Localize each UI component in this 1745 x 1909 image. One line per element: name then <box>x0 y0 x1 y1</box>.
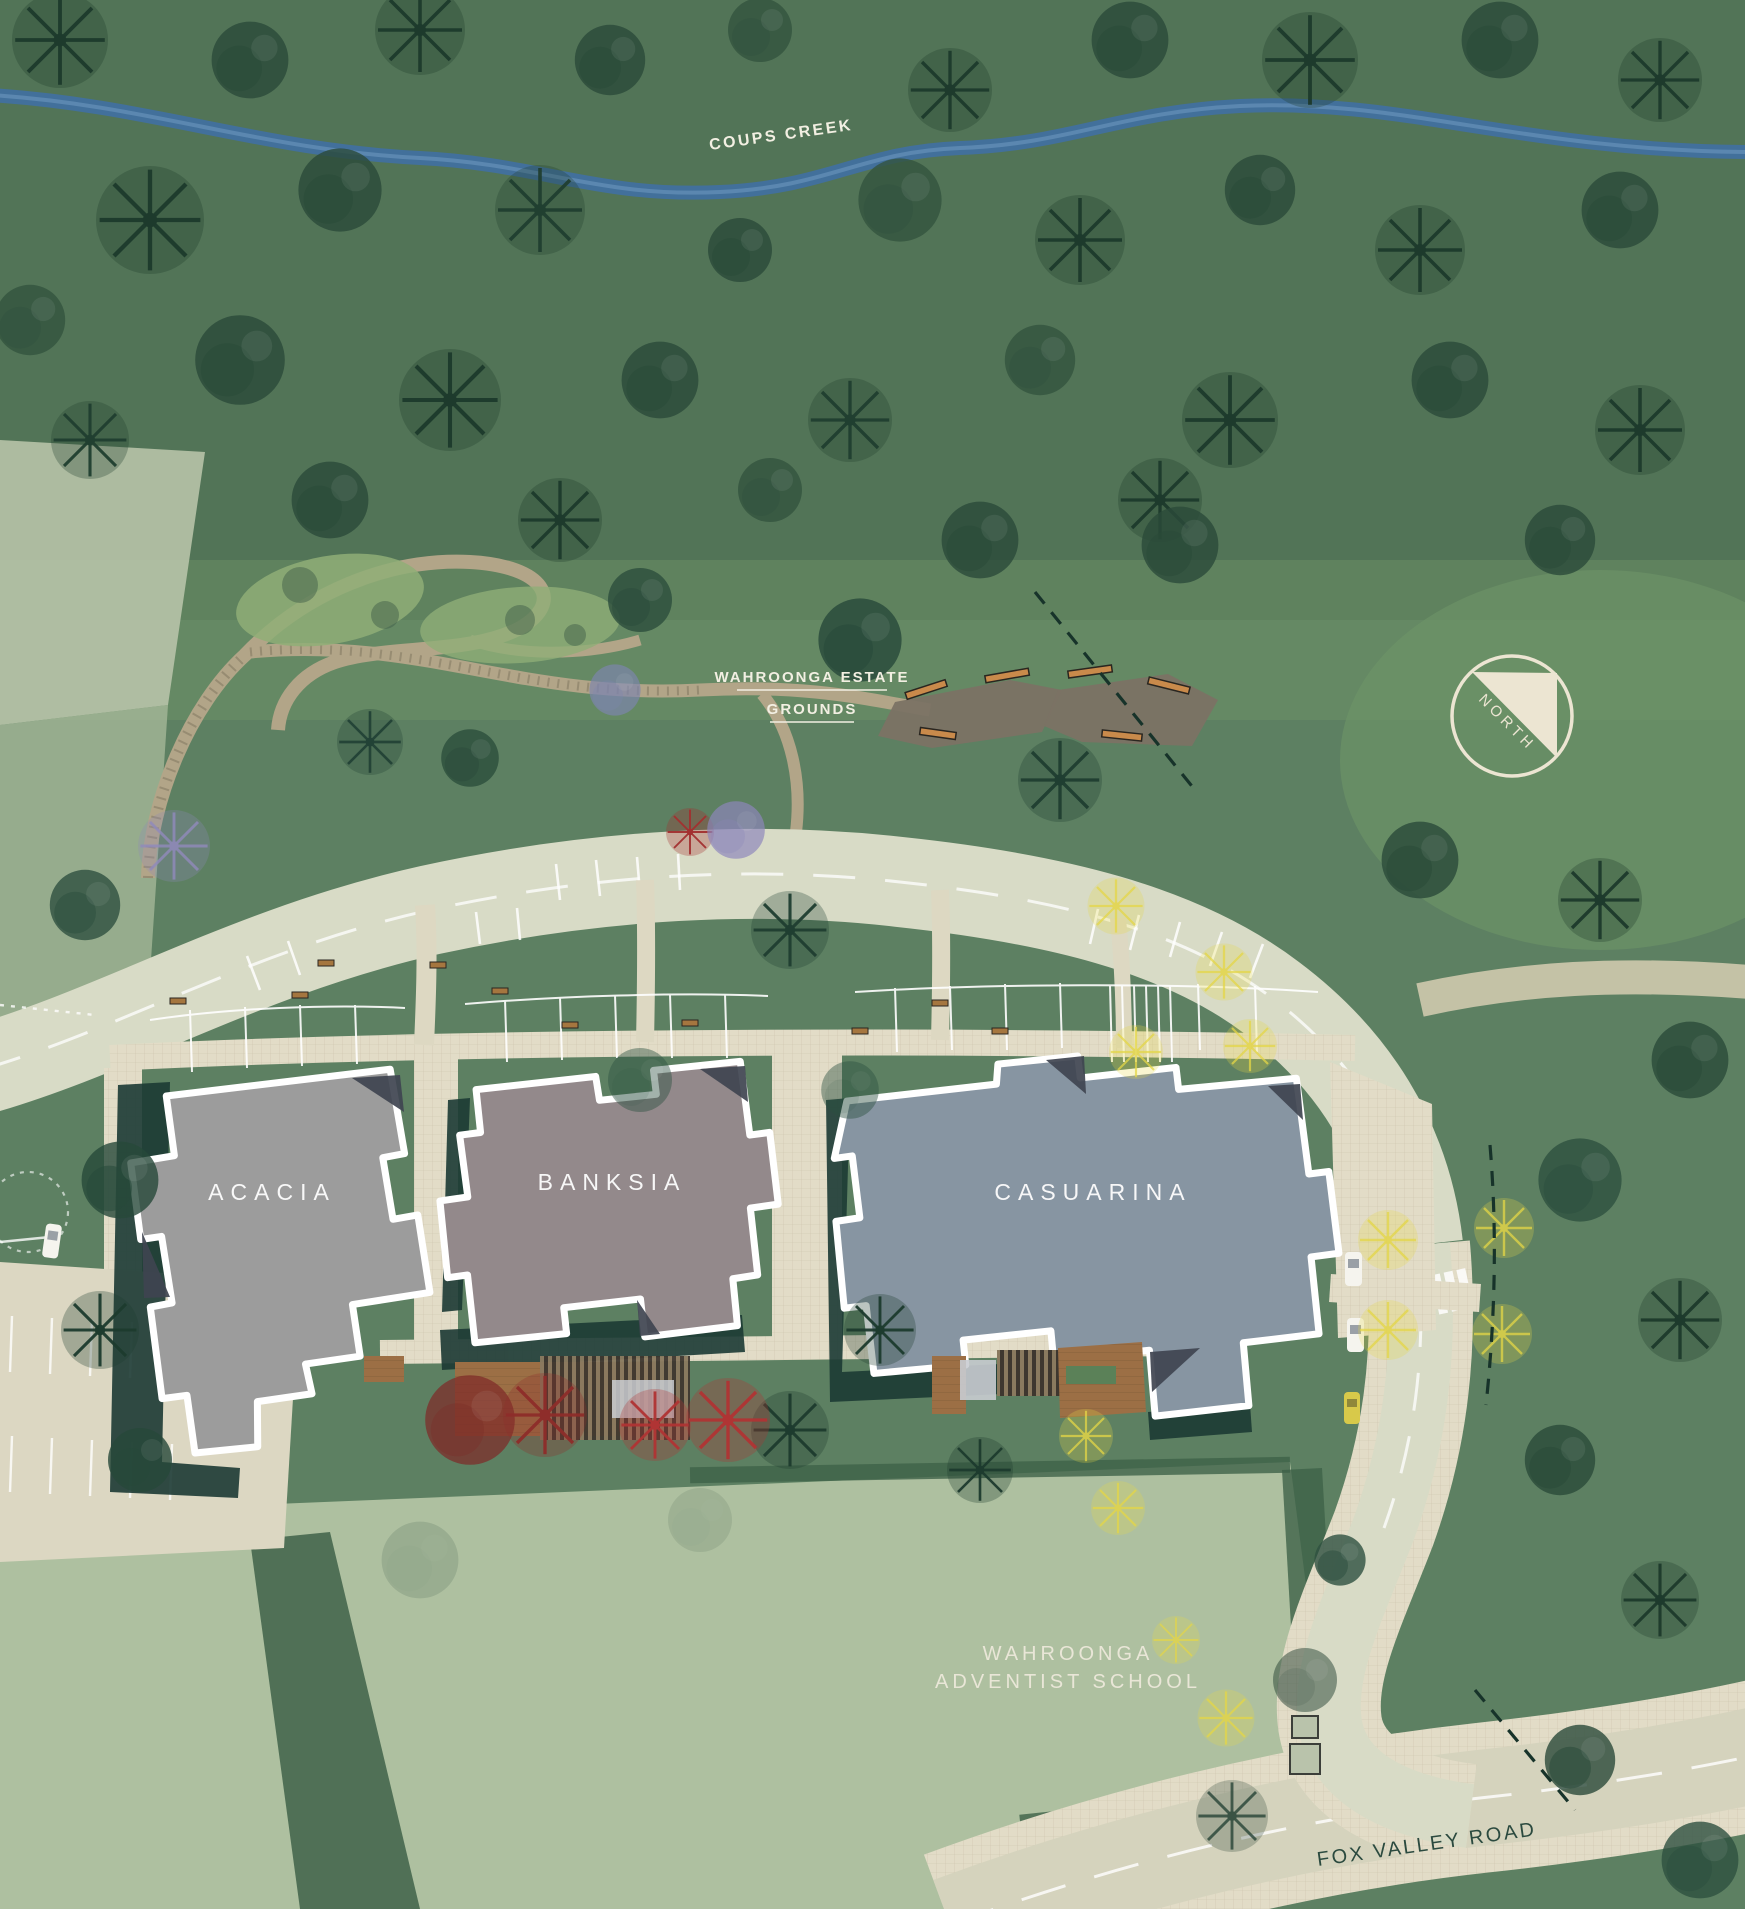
yellow-tree-icon <box>1358 1210 1418 1270</box>
red-tree-icon <box>503 1373 587 1457</box>
tree-icon <box>1018 738 1102 822</box>
tree-icon <box>1525 1425 1595 1495</box>
tree-icon <box>942 502 1019 579</box>
tree-icon <box>1582 172 1659 249</box>
yellow-tree-icon <box>1059 1409 1113 1463</box>
estate-label-line2: GROUNDS <box>767 701 858 718</box>
tree-icon <box>1314 1534 1365 1585</box>
yellow-tree-icon <box>1223 1019 1277 1073</box>
yellow-tree-icon <box>1474 1198 1534 1258</box>
tree-icon <box>1005 325 1075 395</box>
yellow-tree-icon <box>1358 1300 1418 1360</box>
building-banksia <box>435 1060 782 1344</box>
tree-icon <box>1196 1780 1268 1852</box>
purple-tree-icon <box>138 810 210 882</box>
tree-icon <box>82 1142 159 1219</box>
yellow-tree-icon <box>1472 1304 1532 1364</box>
tree-icon <box>1462 2 1539 79</box>
purple-tree-icon <box>589 664 640 715</box>
tree-icon <box>808 378 892 462</box>
tree-icon <box>382 1522 459 1599</box>
tree-icon <box>61 1291 139 1369</box>
red-tree-icon <box>666 808 714 856</box>
tree-icon <box>947 1437 1013 1503</box>
tree-icon <box>708 218 772 282</box>
tree-icon <box>751 891 829 969</box>
tree-icon <box>399 349 501 451</box>
casuarina-label: CASUARINA <box>994 1179 1191 1205</box>
site-plan-map: NORTH COUPS CREEK WAHROONGA ESTATE GROUN… <box>0 0 1745 1909</box>
tree-icon <box>518 478 602 562</box>
tree-icon <box>337 709 403 775</box>
tree-icon <box>844 1294 916 1366</box>
tree-icon <box>821 1061 879 1119</box>
yellow-tree-icon <box>1152 1616 1200 1664</box>
tree-icon <box>50 870 120 940</box>
tree-icon <box>1182 372 1278 468</box>
tree-icon <box>608 568 672 632</box>
tree-icon <box>1558 858 1642 942</box>
tree-icon <box>96 166 204 274</box>
tree-icon <box>292 462 369 539</box>
red-tree-icon <box>619 1389 691 1461</box>
pergola <box>997 1350 1061 1396</box>
banksia-label: BANKSIA <box>538 1169 687 1195</box>
tree-icon <box>195 315 285 405</box>
yellow-tree-icon <box>1196 944 1253 1001</box>
yellow-tree-icon <box>1198 1690 1255 1747</box>
tree-icon <box>1621 1561 1699 1639</box>
tree-icon <box>495 165 585 255</box>
red-tree-icon <box>686 1378 770 1462</box>
car <box>1345 1252 1362 1286</box>
tree-icon <box>1538 1138 1621 1221</box>
tree-icon <box>908 48 992 132</box>
tree-icon <box>738 458 802 522</box>
tree-icon <box>441 729 499 787</box>
school-sheds <box>1290 1716 1320 1774</box>
tree-icon <box>298 148 381 231</box>
tree-icon <box>1525 505 1595 575</box>
school-label-line1: WAHROONGA <box>983 1643 1154 1665</box>
tree-icon <box>1225 155 1295 225</box>
tree-icon <box>1412 342 1489 419</box>
tree-icon <box>575 25 645 95</box>
tree-icon <box>51 401 129 479</box>
tree-icon <box>1273 1648 1337 1712</box>
site-plan-svg: NORTH COUPS CREEK WAHROONGA ESTATE GROUN… <box>0 0 1745 1909</box>
tree-icon <box>1382 822 1459 899</box>
tree-icon <box>1638 1278 1722 1362</box>
yellow-tree-icon <box>1091 1481 1145 1535</box>
acacia-label: ACACIA <box>208 1179 336 1205</box>
tree-icon <box>1035 195 1125 285</box>
tree-icon <box>608 1048 672 1112</box>
tree-icon <box>622 342 699 419</box>
tree-icon <box>1092 2 1169 79</box>
yellow-tree-icon <box>1109 1025 1163 1079</box>
tree-icon <box>1662 1822 1739 1899</box>
tree-icon <box>108 1428 172 1492</box>
tree-icon <box>1652 1022 1729 1099</box>
tree-icon <box>1262 12 1358 108</box>
tree-icon <box>212 22 289 99</box>
purple-tree-icon <box>707 801 765 859</box>
tree-icon <box>728 0 792 62</box>
tree-icon <box>1618 38 1702 122</box>
tree-icon <box>1595 385 1685 475</box>
tree-icon <box>668 1488 732 1552</box>
tree-icon <box>1375 205 1465 295</box>
estate-label-line1: WAHROONGA ESTATE <box>714 669 909 686</box>
tree-icon <box>858 158 941 241</box>
tree-icon <box>1545 1725 1615 1795</box>
tree-icon <box>1142 507 1219 584</box>
red-tree-icon <box>425 1375 515 1465</box>
car <box>1344 1392 1360 1424</box>
school-label-line2: ADVENTIST SCHOOL <box>935 1671 1201 1693</box>
yellow-tree-icon <box>1088 878 1145 935</box>
